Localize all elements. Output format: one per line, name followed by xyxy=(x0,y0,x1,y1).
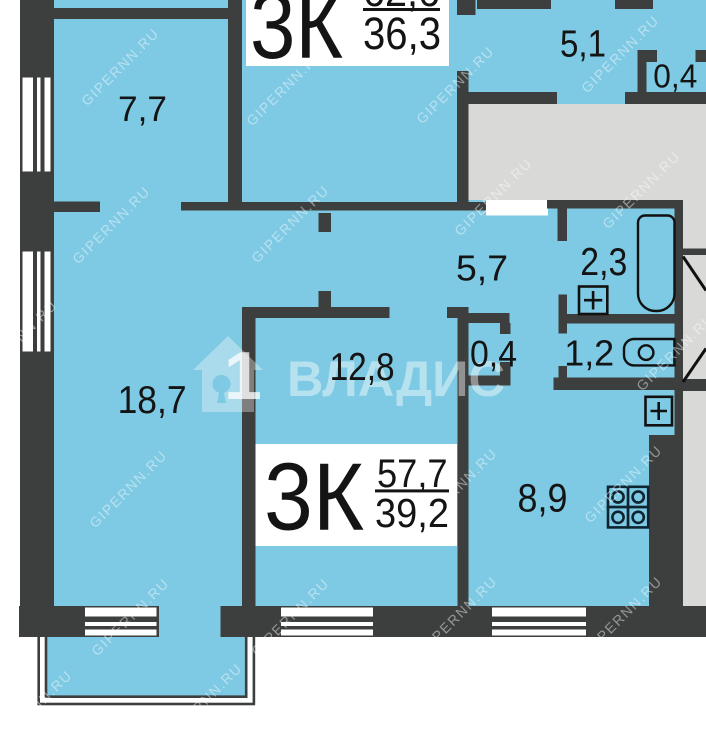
svg-text:7,7: 7,7 xyxy=(118,90,167,129)
svg-text:5,7: 5,7 xyxy=(456,248,508,289)
svg-text:12,8: 12,8 xyxy=(330,346,395,389)
svg-text:36,3: 36,3 xyxy=(363,8,441,59)
svg-text:5,1: 5,1 xyxy=(560,24,606,66)
svg-text:2,3: 2,3 xyxy=(580,241,627,284)
svg-text:3К: 3К xyxy=(264,444,364,551)
svg-text:0,4: 0,4 xyxy=(470,333,517,374)
svg-text:39,2: 39,2 xyxy=(375,490,449,536)
svg-text:1,2: 1,2 xyxy=(564,332,614,373)
svg-text:8,9: 8,9 xyxy=(518,477,568,521)
svg-text:3К: 3К xyxy=(250,0,343,79)
svg-text:18,7: 18,7 xyxy=(118,379,187,422)
svg-text:0,4: 0,4 xyxy=(653,58,697,95)
svg-text:1: 1 xyxy=(224,338,262,414)
